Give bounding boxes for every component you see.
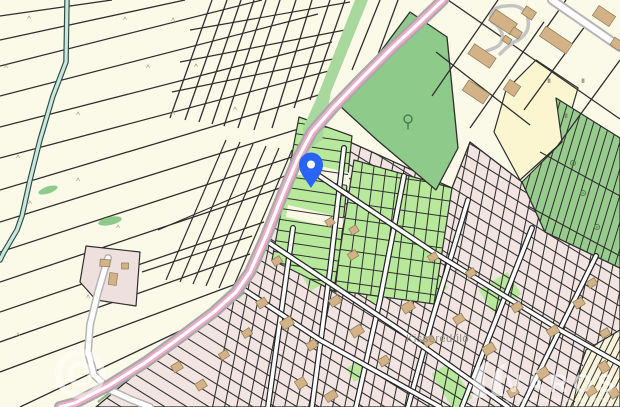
map-canvas[interactable]: ^^^^^^^^^^^^^^^IIIIII Kisseredűlő VÁROSI (0, 0, 620, 407)
svg-text:^: ^ (4, 64, 8, 72)
svg-text:II: II (547, 79, 551, 85)
svg-text:^: ^ (171, 111, 175, 119)
svg-text:^: ^ (27, 15, 31, 23)
svg-text:^: ^ (233, 106, 237, 114)
map-viewport[interactable]: ^^^^^^^^^^^^^^^IIIIII Kisseredűlő VÁROSI (0, 0, 620, 407)
brand-watermark-text: VÁROSI (505, 369, 620, 398)
svg-text:^: ^ (194, 63, 198, 71)
svg-text:II: II (564, 114, 568, 120)
svg-text:II: II (581, 79, 585, 85)
svg-text:^: ^ (16, 332, 20, 340)
svg-text:^: ^ (16, 154, 20, 162)
svg-text:^: ^ (116, 224, 120, 232)
svg-text:^: ^ (76, 111, 80, 119)
svg-text:^: ^ (86, 294, 90, 302)
svg-text:^: ^ (28, 200, 32, 208)
svg-text:^: ^ (123, 16, 127, 24)
svg-text:^: ^ (146, 64, 150, 72)
place-label: Kisseredűlő (406, 333, 469, 345)
svg-text:^: ^ (76, 177, 80, 185)
svg-text:^: ^ (171, 17, 175, 25)
location-pin-dot (307, 161, 315, 169)
